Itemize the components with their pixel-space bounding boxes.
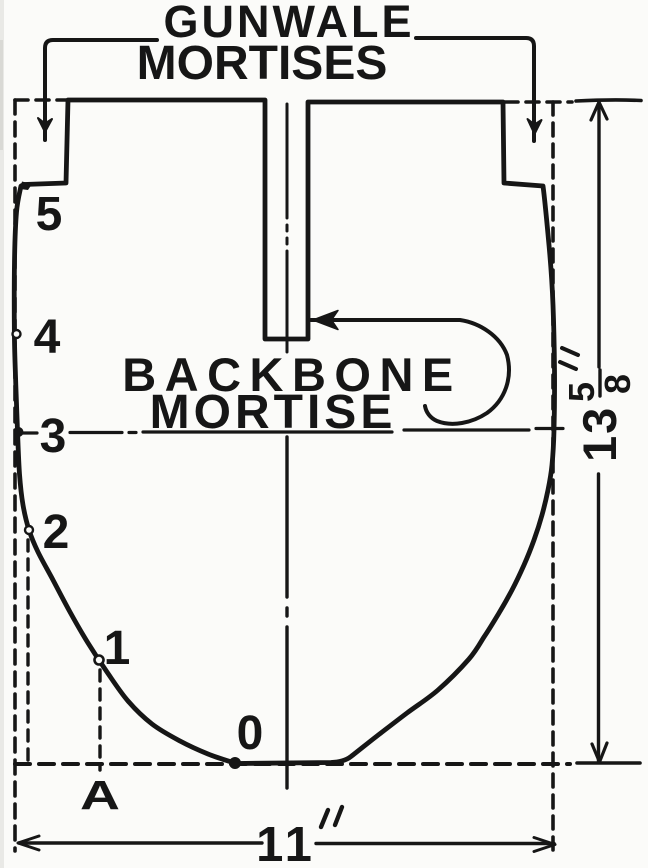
- svg-text:0: 0: [237, 707, 264, 760]
- svg-text:MORTISE: MORTISE: [150, 386, 397, 439]
- svg-text:3: 3: [40, 410, 67, 463]
- svg-text:4: 4: [34, 311, 61, 364]
- svg-text:5: 5: [36, 188, 63, 241]
- svg-text:2: 2: [43, 506, 70, 559]
- svg-text:1: 1: [104, 622, 131, 675]
- svg-text:MORTISES: MORTISES: [137, 37, 388, 90]
- svg-text:A: A: [80, 773, 120, 818]
- svg-text:11: 11: [256, 818, 316, 868]
- svg-text:13: 13: [573, 406, 626, 462]
- svg-text:8: 8: [597, 374, 638, 394]
- svg-text:5: 5: [561, 382, 602, 402]
